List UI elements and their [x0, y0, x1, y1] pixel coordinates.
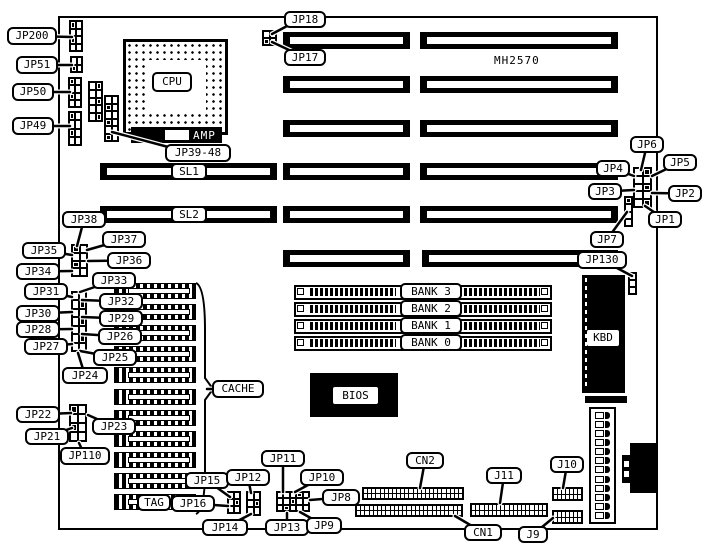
chip-body [128, 351, 190, 357]
jumper-pin [81, 269, 87, 275]
power-pin-row [595, 412, 610, 419]
header-pin [459, 489, 462, 493]
header-pin [566, 512, 569, 517]
keyboard-din-connector [630, 443, 658, 493]
header-pin [522, 505, 525, 510]
jumper-pin [113, 127, 118, 133]
expansion-slot-5-seg-3 [420, 206, 618, 223]
header-pin [391, 511, 394, 515]
power-pin-key [605, 448, 610, 455]
jumper-pin [304, 499, 308, 503]
jumper-pin [635, 169, 642, 175]
jp25-33-pins [71, 291, 87, 352]
power-pin [595, 430, 604, 437]
jumper-pin [255, 508, 260, 514]
din-notch [624, 471, 629, 477]
jp7-pins [624, 196, 633, 227]
callout-jp17: JP17 [284, 49, 326, 66]
jumper-pin [73, 318, 78, 324]
jumper-pin [248, 508, 253, 514]
header-pin [562, 495, 565, 500]
jumper-pin [97, 99, 102, 105]
jumper-pin [76, 101, 80, 106]
callout-jp24: JP24 [62, 367, 108, 384]
header-pin [554, 489, 557, 494]
jumper-pin [304, 493, 308, 497]
jumper-pin [106, 135, 111, 141]
jumper-pin [630, 281, 635, 286]
header-pin [505, 505, 508, 510]
jumper-pin [79, 433, 85, 440]
header-pin [458, 511, 461, 515]
simm-contacts [454, 339, 540, 347]
header-pin [526, 505, 529, 510]
header-pin [518, 511, 521, 516]
jumper-pin [73, 269, 79, 275]
jumper-pin [73, 262, 79, 268]
callout-jp110: JP110 [60, 447, 110, 465]
header-pin [445, 506, 448, 510]
slot-contact-stripe [427, 37, 611, 44]
power-pin-key [605, 439, 610, 446]
callout-tag: TAG [137, 494, 171, 511]
jumper-pin [284, 493, 288, 497]
jumper-pin [635, 185, 642, 191]
header-pin [412, 511, 415, 515]
power-pin-row [595, 476, 610, 483]
header-pin [403, 506, 406, 510]
header-pin [403, 511, 406, 515]
header-pin [405, 489, 408, 493]
callout-jp3: JP3 [588, 183, 622, 200]
jumper-pin [80, 318, 85, 324]
jumper-pin [70, 138, 74, 144]
callout-jp11: JP11 [261, 450, 305, 467]
header-pin [449, 506, 452, 510]
jumper-pin [264, 39, 269, 44]
jumper-pin [297, 499, 301, 503]
header-pin [370, 511, 373, 515]
jumper-pin [113, 135, 118, 141]
jumper-pin [626, 220, 631, 225]
callout-jp13: JP13 [265, 519, 309, 536]
callout-jp12: JP12 [226, 469, 270, 486]
header-pin [505, 511, 508, 516]
header-pin [543, 511, 546, 516]
header-pin [566, 518, 569, 523]
jumper-pin [626, 198, 631, 203]
jp15-16-pins [227, 491, 241, 514]
slot-contact-stripe [290, 125, 403, 132]
header-pin [489, 511, 492, 516]
header-pin [405, 494, 408, 498]
header-pin [442, 494, 445, 498]
jumper-pin [77, 45, 81, 51]
jumper-pin [80, 344, 85, 350]
jumper-pin [271, 32, 276, 37]
jumper-pin [80, 310, 85, 316]
callout-jp15: JP15 [185, 472, 229, 489]
header-pin [438, 494, 441, 498]
header-pin [578, 489, 581, 494]
header-pin [442, 489, 445, 493]
header-pin [368, 489, 371, 493]
slot-contact-stripe [427, 125, 611, 132]
fuse-bar [585, 396, 627, 403]
slot-contact-stripe [290, 255, 403, 262]
callout-jp38: JP38 [62, 211, 106, 228]
header-pin [382, 511, 385, 515]
jumper-pin [90, 83, 95, 89]
jumper-pin [635, 200, 642, 206]
header-pin [381, 489, 384, 493]
header-pin [441, 511, 444, 515]
chip-label-kbd: KBD [587, 330, 619, 346]
callout-jp9: JP9 [306, 517, 342, 534]
jumper-pin [71, 37, 75, 43]
header-pin [497, 505, 500, 510]
jumper-pin [229, 493, 233, 498]
callout-jp33: JP33 [92, 272, 136, 289]
callout-jp14: JP14 [202, 519, 248, 536]
callout-jp10: JP10 [300, 469, 344, 486]
jumper-pin [235, 493, 239, 498]
jumper-pin [80, 293, 85, 299]
jumper-pin [644, 185, 651, 191]
jumper-pin [284, 499, 288, 503]
callout-jp200: JP200 [7, 27, 57, 45]
jumper-pin [248, 501, 253, 507]
cache-chip-9 [114, 452, 196, 468]
header-pin [441, 506, 444, 510]
chip-body [128, 436, 190, 442]
header-pin [472, 505, 475, 510]
header-pin [558, 489, 561, 494]
header-pin [426, 489, 429, 493]
jumper-pin [80, 335, 85, 341]
power-pin [595, 466, 604, 473]
header-pin [430, 494, 433, 498]
header-pin [416, 511, 419, 515]
header-pin [514, 505, 517, 510]
callout-jp8: JP8 [322, 489, 360, 506]
slot-contact-stripe [290, 168, 403, 175]
jumper-pin [77, 22, 81, 28]
header-pin [381, 494, 384, 498]
header-pin [418, 489, 421, 493]
cache-chip-5 [114, 367, 196, 383]
cn2-header-a [362, 487, 464, 500]
callout-jp23: JP23 [92, 418, 136, 435]
header-pin [409, 494, 412, 498]
header-pin [485, 505, 488, 510]
jumper-pin [76, 86, 80, 91]
header-pin [510, 511, 513, 516]
header-pin [574, 495, 577, 500]
jumper-pin [72, 66, 76, 72]
jumper-pin [635, 192, 642, 198]
header-pin [378, 511, 381, 515]
header-pin [566, 495, 569, 500]
jumper-pin [113, 105, 118, 111]
jumper-pin [71, 30, 75, 36]
power-pin-row [595, 439, 610, 446]
header-pin [374, 506, 377, 510]
header-pin [578, 518, 581, 523]
jumper-pin [626, 213, 631, 218]
jumper-pin [304, 506, 308, 510]
jumper-pin [77, 37, 81, 43]
header-pin [447, 494, 450, 498]
header-pin [399, 506, 402, 510]
header-pin [357, 506, 360, 510]
slot-contact-stripe [427, 168, 611, 175]
header-pin [485, 511, 488, 516]
jumper-pin [70, 113, 74, 119]
header-pin [416, 506, 419, 510]
jumper-pin [644, 177, 651, 183]
jumper-pin [248, 493, 253, 499]
jumper-pin [291, 506, 295, 510]
j9-header [552, 510, 583, 524]
cache-chip-10 [114, 473, 196, 489]
jumper-pin [76, 138, 80, 144]
header-pin [530, 505, 533, 510]
jumper-pin [70, 130, 74, 136]
expansion-slot-2-seg-2 [420, 76, 618, 93]
slot-contact-stripe [290, 37, 403, 44]
header-pin [570, 512, 573, 517]
header-pin [401, 494, 404, 498]
jumper-pin [71, 424, 77, 431]
header-pin [414, 489, 417, 493]
amp-text: AMP [193, 129, 216, 142]
jumper-pin [70, 121, 74, 127]
power-pin [595, 494, 604, 501]
header-pin [539, 511, 542, 516]
expansion-slot-2-seg-1 [283, 76, 410, 93]
expansion-slot-4-seg-3 [420, 163, 618, 180]
header-pin [574, 512, 577, 517]
jp51-pins [70, 56, 83, 73]
header-pin [364, 489, 367, 493]
power-pin-row [595, 430, 610, 437]
jumper-pin [235, 507, 239, 512]
jumper-pin [229, 500, 233, 505]
header-pin [434, 489, 437, 493]
simm-contacts [454, 305, 540, 313]
jumper-pin [73, 344, 78, 350]
header-pin [570, 518, 573, 523]
keyboard-din-connector [622, 455, 634, 483]
header-pin [458, 506, 461, 510]
simm-end-clip [541, 288, 548, 295]
jumper-pin [72, 58, 76, 64]
simm-contacts [310, 305, 396, 313]
jumper-pin [73, 246, 79, 252]
header-pin [554, 518, 557, 523]
header-pin [472, 511, 475, 516]
header-pin [459, 494, 462, 498]
jp50-pins [68, 77, 82, 108]
header-pin [562, 489, 565, 494]
jumper-pin [70, 101, 74, 106]
callout-jp30: JP30 [16, 305, 60, 322]
chip-label-bios: BIOS [333, 387, 378, 404]
callout-jp51: JP51 [16, 56, 58, 74]
callout-j10: J10 [550, 456, 584, 473]
jp39-48-pins-a [88, 81, 103, 122]
jumper-pin [97, 91, 102, 97]
header-pin [454, 506, 457, 510]
jumper-pin [113, 97, 118, 103]
chip-body [128, 415, 190, 421]
callout-jp37: JP37 [102, 231, 146, 248]
callout-jp34: JP34 [16, 263, 60, 280]
header-pin [361, 511, 364, 515]
jumper-pin [76, 130, 80, 136]
header-pin [530, 511, 533, 516]
header-pin [558, 512, 561, 517]
header-pin [420, 506, 423, 510]
chip-body [128, 478, 190, 484]
header-pin [476, 511, 479, 516]
jumper-pin [264, 32, 269, 37]
callout-jp32: JP32 [99, 293, 143, 310]
jumper-pin [90, 99, 95, 105]
jumper-pin [70, 94, 74, 99]
jumper-pin [106, 105, 111, 111]
simm-contacts [310, 339, 396, 347]
callout-cache: CACHE [212, 380, 264, 398]
cache-chip-6 [114, 389, 196, 405]
header-pin [376, 489, 379, 493]
jumper-pin [278, 493, 282, 497]
callout-cn2: CN2 [406, 452, 444, 469]
jumper-pin [71, 415, 77, 422]
motherboard-jumper-diagram: MH2570 AMP JP200JP51JP50JP49JP18JP17JP39… [0, 0, 704, 555]
callout-jp5: JP5 [663, 154, 697, 171]
header-pin [414, 494, 417, 498]
header-pin [428, 506, 431, 510]
header-pin [386, 511, 389, 515]
header-pin [437, 511, 440, 515]
header-pin [386, 506, 389, 510]
header-pin [570, 489, 573, 494]
header-pin [399, 511, 402, 515]
header-pin [493, 511, 496, 516]
header-pin [422, 489, 425, 493]
jumper-pin [644, 200, 651, 206]
expansion-slot-5-seg-2 [283, 206, 410, 223]
callout-jp49: JP49 [12, 117, 54, 135]
jumper-pin [106, 127, 111, 133]
callout-jp18: JP18 [284, 11, 326, 28]
jumper-pin [80, 301, 85, 307]
callout-jp36: JP36 [107, 252, 151, 269]
callout-jp50: JP50 [12, 83, 54, 101]
jumper-pin [284, 506, 288, 510]
header-pin [395, 511, 398, 515]
header-pin [451, 494, 454, 498]
header-pin [391, 506, 394, 510]
header-pin [574, 518, 577, 523]
power-pin-key [605, 476, 610, 483]
header-pin [409, 489, 412, 493]
jumper-pin [71, 22, 75, 28]
header-pin [401, 489, 404, 493]
jumper-pin [79, 415, 85, 422]
jp21-23-pins [69, 404, 87, 442]
header-pin [566, 489, 569, 494]
header-pin [385, 489, 388, 493]
power-pin-key [605, 457, 610, 464]
header-pin [376, 494, 379, 498]
header-pin [407, 511, 410, 515]
header-pin [374, 511, 377, 515]
header-pin [501, 505, 504, 510]
header-pin [438, 489, 441, 493]
jumper-pin [81, 262, 87, 268]
header-pin [378, 506, 381, 510]
jumper-pin [278, 499, 282, 503]
jumper-pin [81, 254, 87, 260]
power-pin-key [605, 466, 610, 473]
header-pin [455, 489, 458, 493]
power-pin [595, 512, 604, 519]
power-pin-key [605, 421, 610, 428]
header-pin [514, 511, 517, 516]
jumper-pin [90, 106, 95, 112]
jumper-pin [113, 120, 118, 126]
jumper-pin [97, 83, 102, 89]
jumper-pin [81, 246, 87, 252]
part-label-bank1: BANK 1 [400, 317, 462, 334]
callout-jp2: JP2 [668, 185, 702, 202]
power-pin-row [595, 448, 610, 455]
power-pin [595, 457, 604, 464]
callout-j11: J11 [486, 467, 522, 484]
simm-contacts [310, 322, 396, 330]
callout-jp4: JP4 [596, 160, 630, 177]
simm-end-clip [541, 322, 548, 329]
header-pin [447, 489, 450, 493]
header-pin [476, 505, 479, 510]
simm-end-clip [297, 288, 304, 295]
header-pin [389, 489, 392, 493]
jumper-pin [73, 310, 78, 316]
header-pin [539, 505, 542, 510]
power-pin-key [605, 430, 610, 437]
header-pin [578, 495, 581, 500]
power-pin [595, 503, 604, 510]
jumper-pin [97, 114, 102, 120]
header-pin [522, 511, 525, 516]
header-pin [372, 489, 375, 493]
simm-end-clip [541, 339, 548, 346]
jumper-pin [73, 301, 78, 307]
header-pin [437, 506, 440, 510]
cn2-header-b [355, 504, 463, 517]
power-pin [595, 485, 604, 492]
header-pin [558, 495, 561, 500]
header-pin [433, 506, 436, 510]
header-pin [480, 511, 483, 516]
power-pin-key [605, 503, 610, 510]
part-label-bank2: BANK 2 [400, 300, 462, 317]
header-pin [426, 494, 429, 498]
jp34-38-pins [71, 244, 88, 277]
